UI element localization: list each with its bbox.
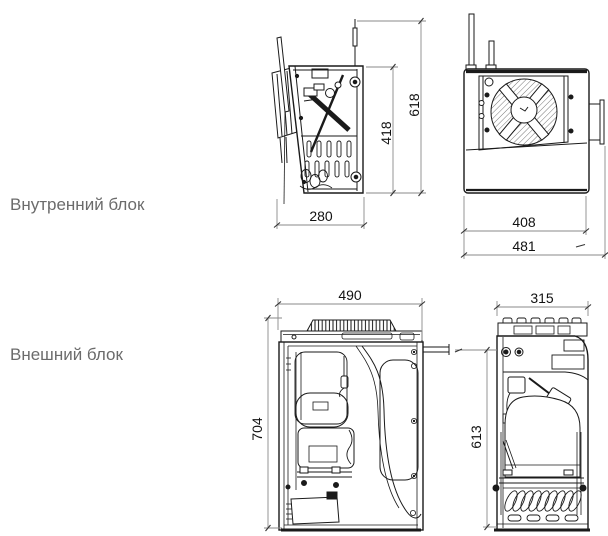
- dim-external-front-width: 490: [338, 287, 362, 303]
- drawing-sheet: Внутренний блок Внешний блок: [0, 0, 608, 536]
- dim-internal-front-body-width: 408: [512, 214, 536, 230]
- dim-internal-side-width: 280: [309, 208, 333, 224]
- internal-unit-side-view: [272, 19, 363, 204]
- external-unit-front-view: [279, 320, 449, 530]
- dim-external-side-height: 613: [468, 425, 484, 449]
- dim-external-front-height: 704: [249, 417, 265, 441]
- dim-internal-side-body-height: 418: [378, 121, 394, 145]
- dim-internal-side-total-height: 618: [406, 93, 422, 117]
- dim-internal-front-total-width: 481: [512, 238, 536, 254]
- dim-external-side-depth: 315: [530, 290, 554, 306]
- internal-unit-front-view: [464, 14, 604, 193]
- technical-drawing: 280 418 618: [0, 0, 608, 536]
- external-unit-side-view: [493, 318, 590, 530]
